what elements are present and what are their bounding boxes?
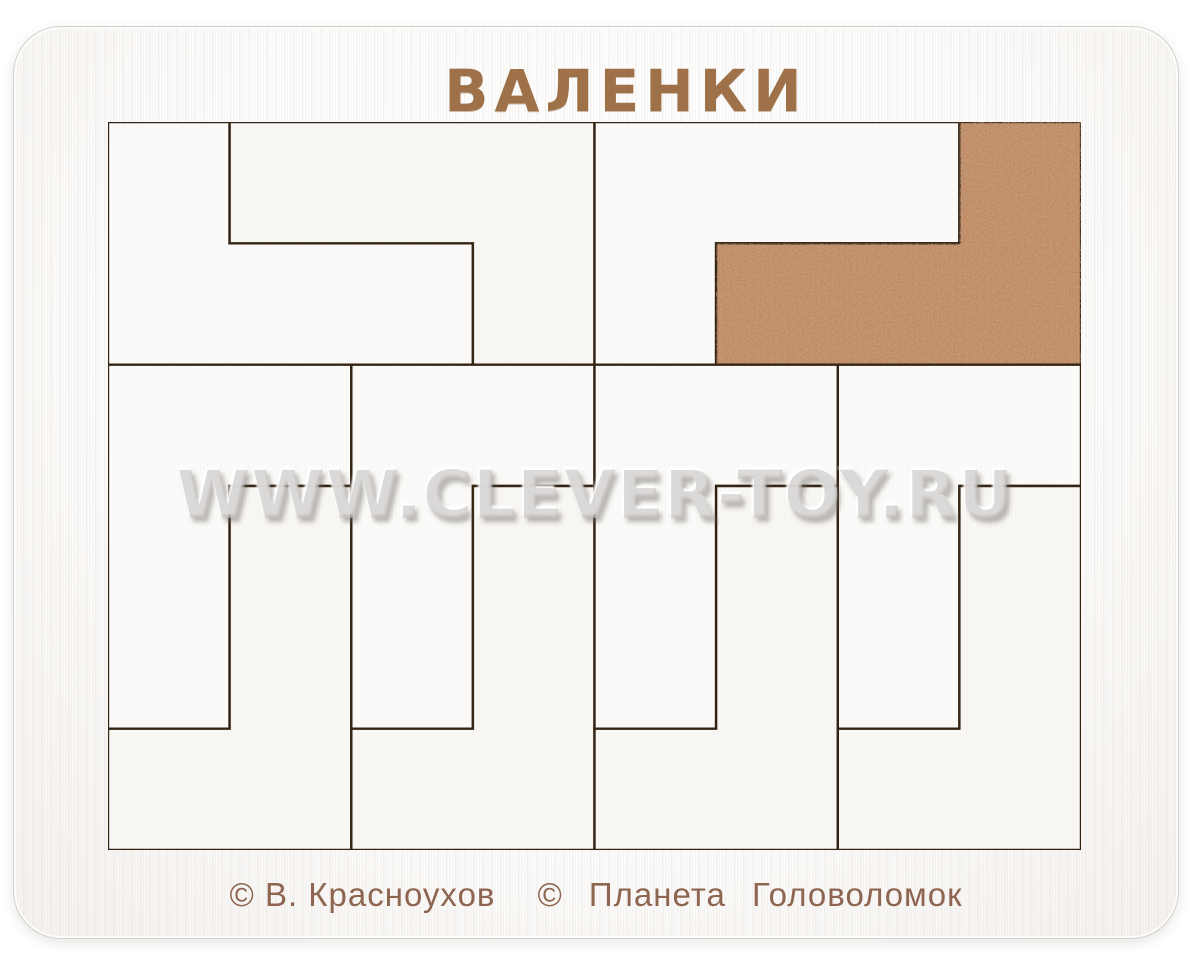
puzzle-board: ВАЛЕНКИ WWW.CLEVER-TOY.RU © В. Красноухо… <box>13 26 1179 939</box>
credit-author: © В. Красноухов <box>229 876 495 914</box>
credits: © В. Красноухов © Планета Головоломок <box>14 876 1178 914</box>
credit-publisher: © Планета Головоломок <box>537 876 962 914</box>
puzzle-tray <box>108 122 1081 850</box>
puzzle-title: ВАЛЕНКИ <box>44 57 1201 125</box>
